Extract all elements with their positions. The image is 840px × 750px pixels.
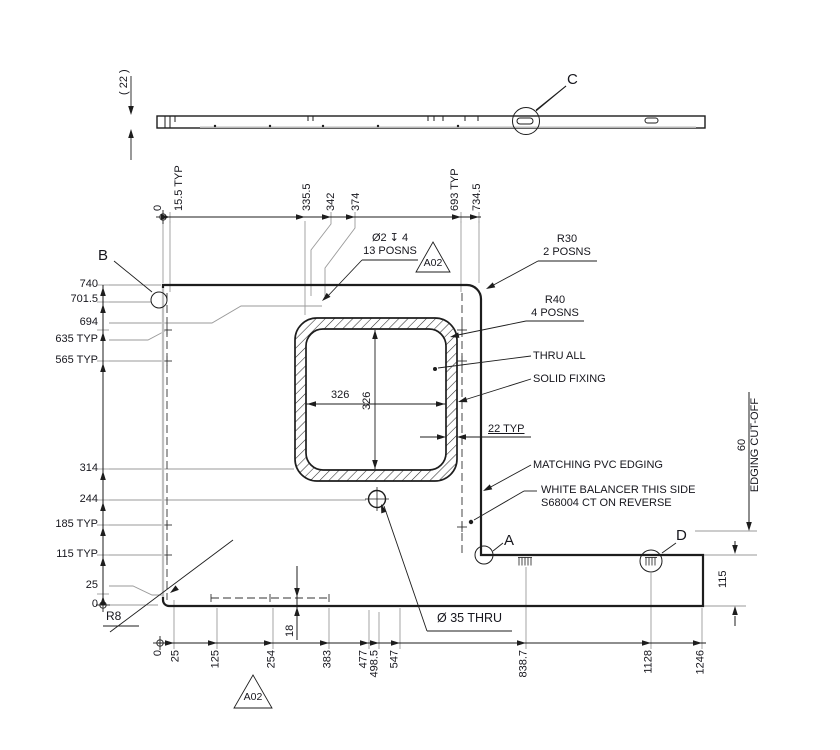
revision-flag-bottom: A02 [239,691,267,703]
r30-note: R30 2 POSNS [536,233,598,258]
centerlines [167,293,462,600]
balancer-note: WHITE BALANCER THIS SIDE S68004 CT ON RE… [541,484,695,510]
callout-d: D [676,528,687,544]
dimension-lines [103,217,749,643]
cutout-height-dim: 326 [361,392,373,410]
dim-left-3: 635 TYP [26,333,98,346]
dim-bottom-2: 125 [209,650,221,668]
dim-bottom-7: 547 [388,650,400,668]
profile-thickness-dim: ( 22 ) [118,69,130,95]
dim-left-4: 565 TYP [26,354,98,367]
r30-value: R30 [536,233,598,246]
dim-top-6: 734.5 [471,183,483,211]
hole-35-note: Ø 35 THRU [437,612,502,624]
drawing-canvas [0,0,840,750]
fixing-detail-2 [645,558,657,566]
hole-pattern-spec: Ø2 ↧ 4 [354,232,426,245]
dimension-arrows [100,214,752,646]
edging-cutoff-value: 60 [736,390,749,500]
dim-left-8: 115 TYP [26,548,98,561]
pvc-edging-note: MATCHING PVC EDGING [533,459,663,471]
edging-cutoff-label: EDGING CUT-OFF [749,390,762,500]
dim-top-2: 335.5 [301,183,313,211]
detail-b-balloon [151,292,167,308]
dim-left-1: 701.5 [26,293,98,306]
dim-top-3: 342 [325,193,337,211]
dim-top-0: 0 [152,205,164,211]
r40-count: 4 POSNS [524,307,586,320]
hole-position-marks [162,325,467,602]
dim-left-10: 0 [26,598,98,611]
dim-bottom-3: 254 [265,650,277,668]
callout-c: C [567,72,578,88]
dim-bottom-5: 477 [357,650,369,668]
panel-outline [163,285,703,606]
leader-lines [103,86,676,708]
dim-bottom-8: 838.7 [518,650,530,678]
dim-bottom-0: 0 [152,650,164,656]
r8-note: R8 [106,610,121,622]
fixing-detail-1 [518,558,532,566]
balancer-line2: S68004 CT ON REVERSE [541,497,695,510]
thru-all-note: THRU ALL [533,350,586,362]
dim-bottom-4: 383 [321,650,333,668]
dim-bottom-6: 498.5 [369,650,381,678]
dim-left-2: 694 [26,316,98,329]
hole-pattern-note: Ø2 ↧ 4 13 POSNS [354,232,426,257]
extension-lines [97,212,757,649]
edging-cutoff-dim: 60 EDGING CUT-OFF [736,390,762,500]
hole-35 [365,487,389,511]
r30-count: 2 POSNS [536,246,598,259]
dim-left-0: 740 [26,278,98,291]
dim-left-7: 185 TYP [26,518,98,531]
dim-bottom-1: 25 [169,650,181,662]
profile-slot-1 [517,118,533,124]
profile-view [128,76,705,160]
solid-fixing-note: SOLID FIXING [533,373,606,385]
ring-thickness-dim: 22 TYP [488,423,525,435]
cutout-width-dim: 326 [331,389,349,401]
cutout-dimensions [306,330,446,469]
revision-flag-top: A02 [419,257,447,269]
callout-a: A [504,533,514,549]
r40-value: R40 [524,294,586,307]
dim-bottom-9: 1128 [643,650,655,674]
profile-slot-2 [645,118,658,123]
dim-left-5: 314 [26,462,98,475]
dim-left-9: 25 [26,579,98,592]
cad-drawing-sheet: ( 22 ) C 0 15.5 TYP 335.5 342 374 693 TY… [0,0,840,750]
dim-top-4: 374 [350,193,362,211]
dim-top-1: 15.5 TYP [173,165,185,211]
cutout-hatched-ring [295,318,457,481]
callout-b: B [98,248,108,264]
dim-left-6: 244 [26,493,98,506]
dim-bottom-10: 1246 [694,650,706,674]
r40-note: R40 4 POSNS [524,294,586,319]
hole-pattern-count: 13 POSNS [354,245,426,258]
slot-offset-dim: 18 [284,625,296,637]
tab-height-dim: 115 [717,570,729,588]
detail-d-balloon [640,550,662,572]
dim-top-5: 693 TYP [449,168,461,211]
balancer-line1: WHITE BALANCER THIS SIDE [541,484,695,497]
